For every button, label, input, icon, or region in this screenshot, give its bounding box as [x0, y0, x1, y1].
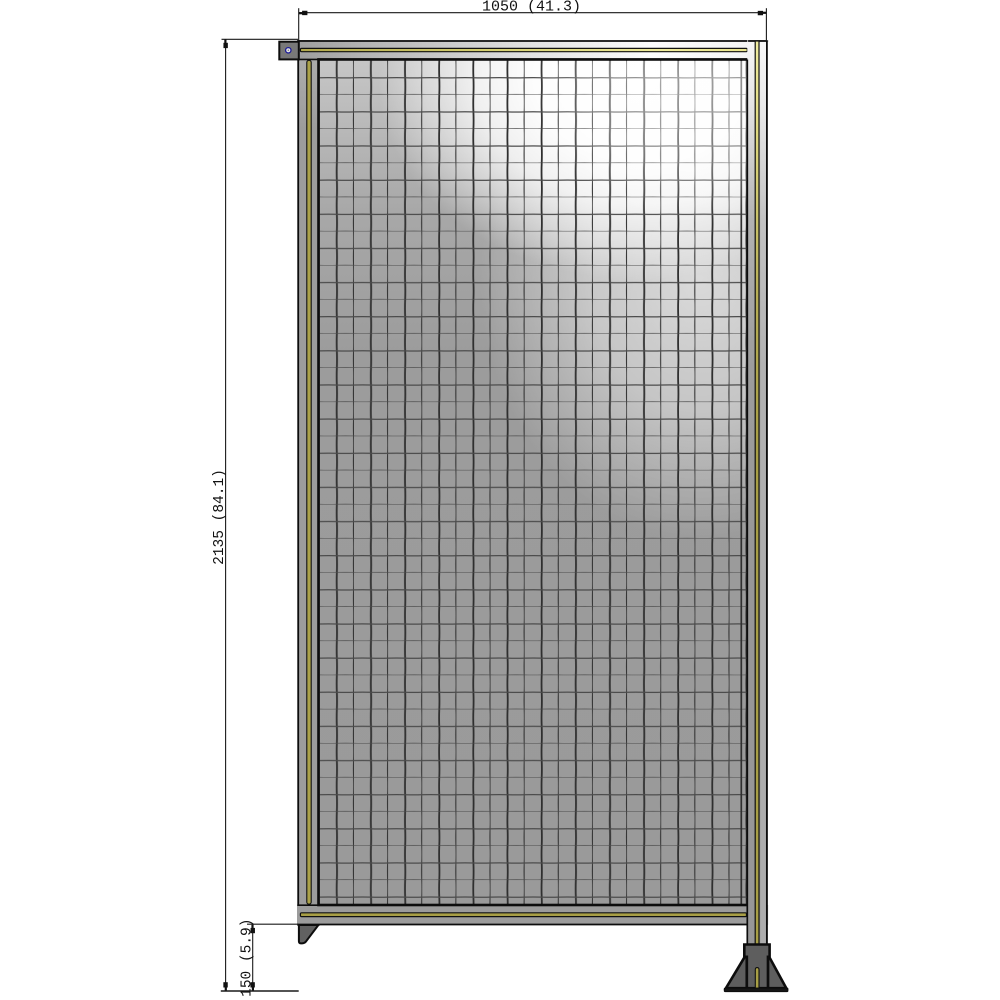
svg-text:2135 (84.1): 2135 (84.1): [212, 469, 228, 565]
svg-text:1050 (41.3): 1050 (41.3): [482, 0, 581, 16]
svg-text:150 (5.9): 150 (5.9): [239, 919, 255, 997]
